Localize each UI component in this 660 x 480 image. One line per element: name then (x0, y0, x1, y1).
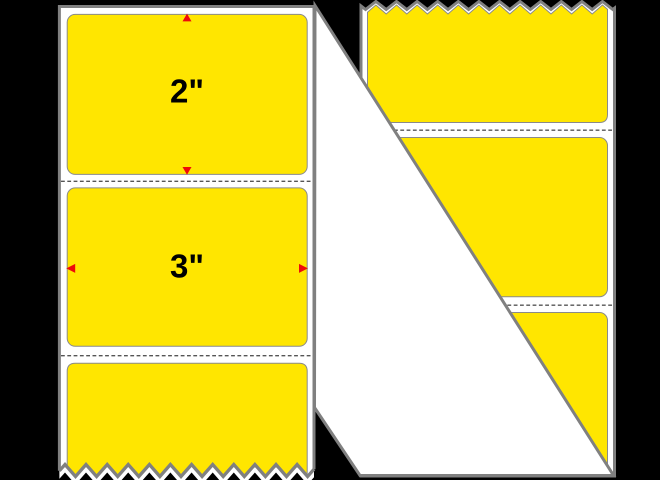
svg-text:2": 2" (170, 73, 204, 110)
svg-text:3": 3" (170, 248, 204, 285)
